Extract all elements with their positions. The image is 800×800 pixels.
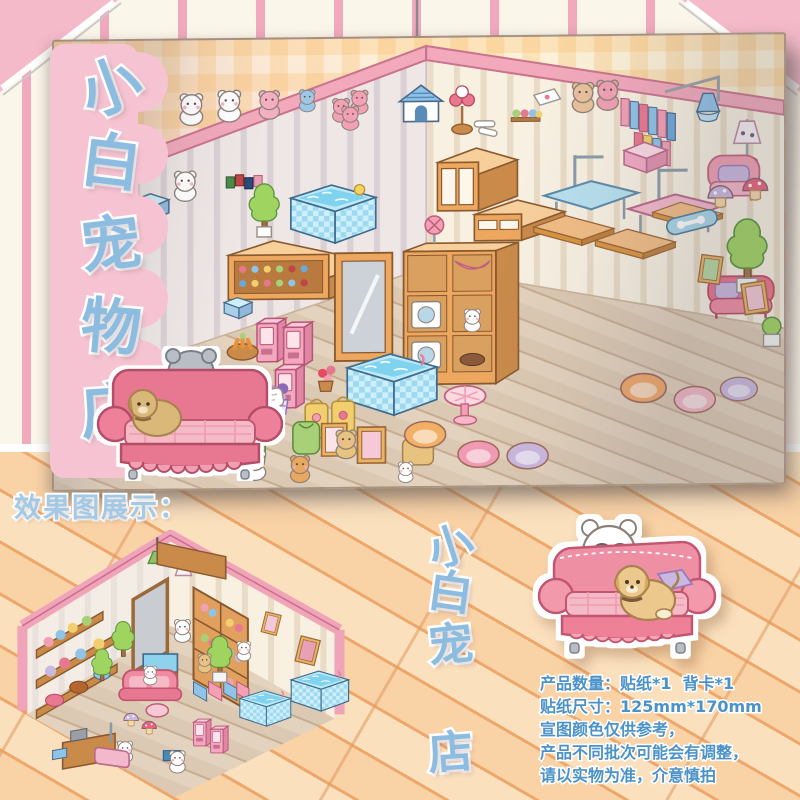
- cat-portrait-frame-icon: [357, 427, 385, 463]
- bear-sofa-sticker: [530, 512, 725, 662]
- corner-sofa-sticker: [85, 346, 285, 481]
- product-info-line: 产品数量：贴纸*1 背卡*1: [540, 674, 796, 693]
- white-cat-icon: [180, 94, 203, 126]
- preview-table-icon: [146, 704, 168, 717]
- preview-vending-icon: [194, 719, 211, 746]
- pet-bed-icon: [720, 377, 757, 401]
- store-title-char: 白: [405, 564, 495, 620]
- pet-outfit-green-icon: [293, 422, 320, 454]
- pet-bed-icon: [621, 373, 666, 402]
- preview-cat-icon: [144, 666, 157, 685]
- product-info-line: 贴纸尺寸：125mm*170mm: [540, 697, 796, 716]
- white-cat-icon: [175, 171, 196, 201]
- sofa-pink-icon: [98, 370, 282, 479]
- store-title-char: 店: [407, 727, 495, 778]
- puppy-icon: [290, 455, 309, 482]
- store-title-vertical-bottom: 小 白 宠 店: [408, 516, 493, 800]
- store-title-char: 宠: [406, 618, 495, 672]
- white-cat-icon: [218, 90, 241, 122]
- preview-cat-icon: [174, 620, 190, 643]
- pink-doll-icon: [259, 91, 279, 120]
- store-title-char: 小: [43, 39, 178, 137]
- store-title-char: 宠: [47, 208, 175, 282]
- blue-toy-icon: [299, 90, 315, 112]
- plush-doll-icon: [597, 80, 618, 110]
- preview-puppy-icon: [198, 654, 211, 673]
- standing-mirror-icon: [335, 253, 392, 361]
- pet-bed-icon: [458, 441, 499, 468]
- product-display-image: 小 白 宠 物 店: [0, 0, 800, 800]
- picture-frame-icon: [741, 281, 769, 315]
- pet-bed-icon: [674, 386, 715, 413]
- plant-pot-icon: [762, 317, 780, 346]
- vending-machine-icon: [284, 322, 313, 366]
- product-info-line: 宣图颜色仅供参考，: [540, 720, 796, 739]
- plush-doll-icon: [572, 82, 593, 112]
- product-info: 产品数量：贴纸*1 背卡*1 贴纸尺寸：125mm*170mm 宣图颜色仅供参考…: [540, 674, 796, 789]
- store-title-char: 白: [47, 126, 175, 200]
- picture-frame-icon: [698, 255, 723, 285]
- kitten-icon: [398, 462, 413, 483]
- pet-bed-icon: [507, 442, 548, 469]
- preview-cat-icon: [237, 641, 251, 661]
- product-info-line: 请以实物为准，介意慎拍: [540, 766, 796, 785]
- preview-cat-icon: [170, 751, 186, 773]
- preview-vending-icon: [211, 726, 228, 753]
- assembled-room-preview: [6, 503, 374, 800]
- pet-bed-icon: [405, 421, 446, 448]
- puppy-icon: [336, 430, 356, 459]
- duck-toy-icon: [354, 185, 364, 195]
- product-info-line: 产品不同批次可能会有调整，: [540, 743, 796, 762]
